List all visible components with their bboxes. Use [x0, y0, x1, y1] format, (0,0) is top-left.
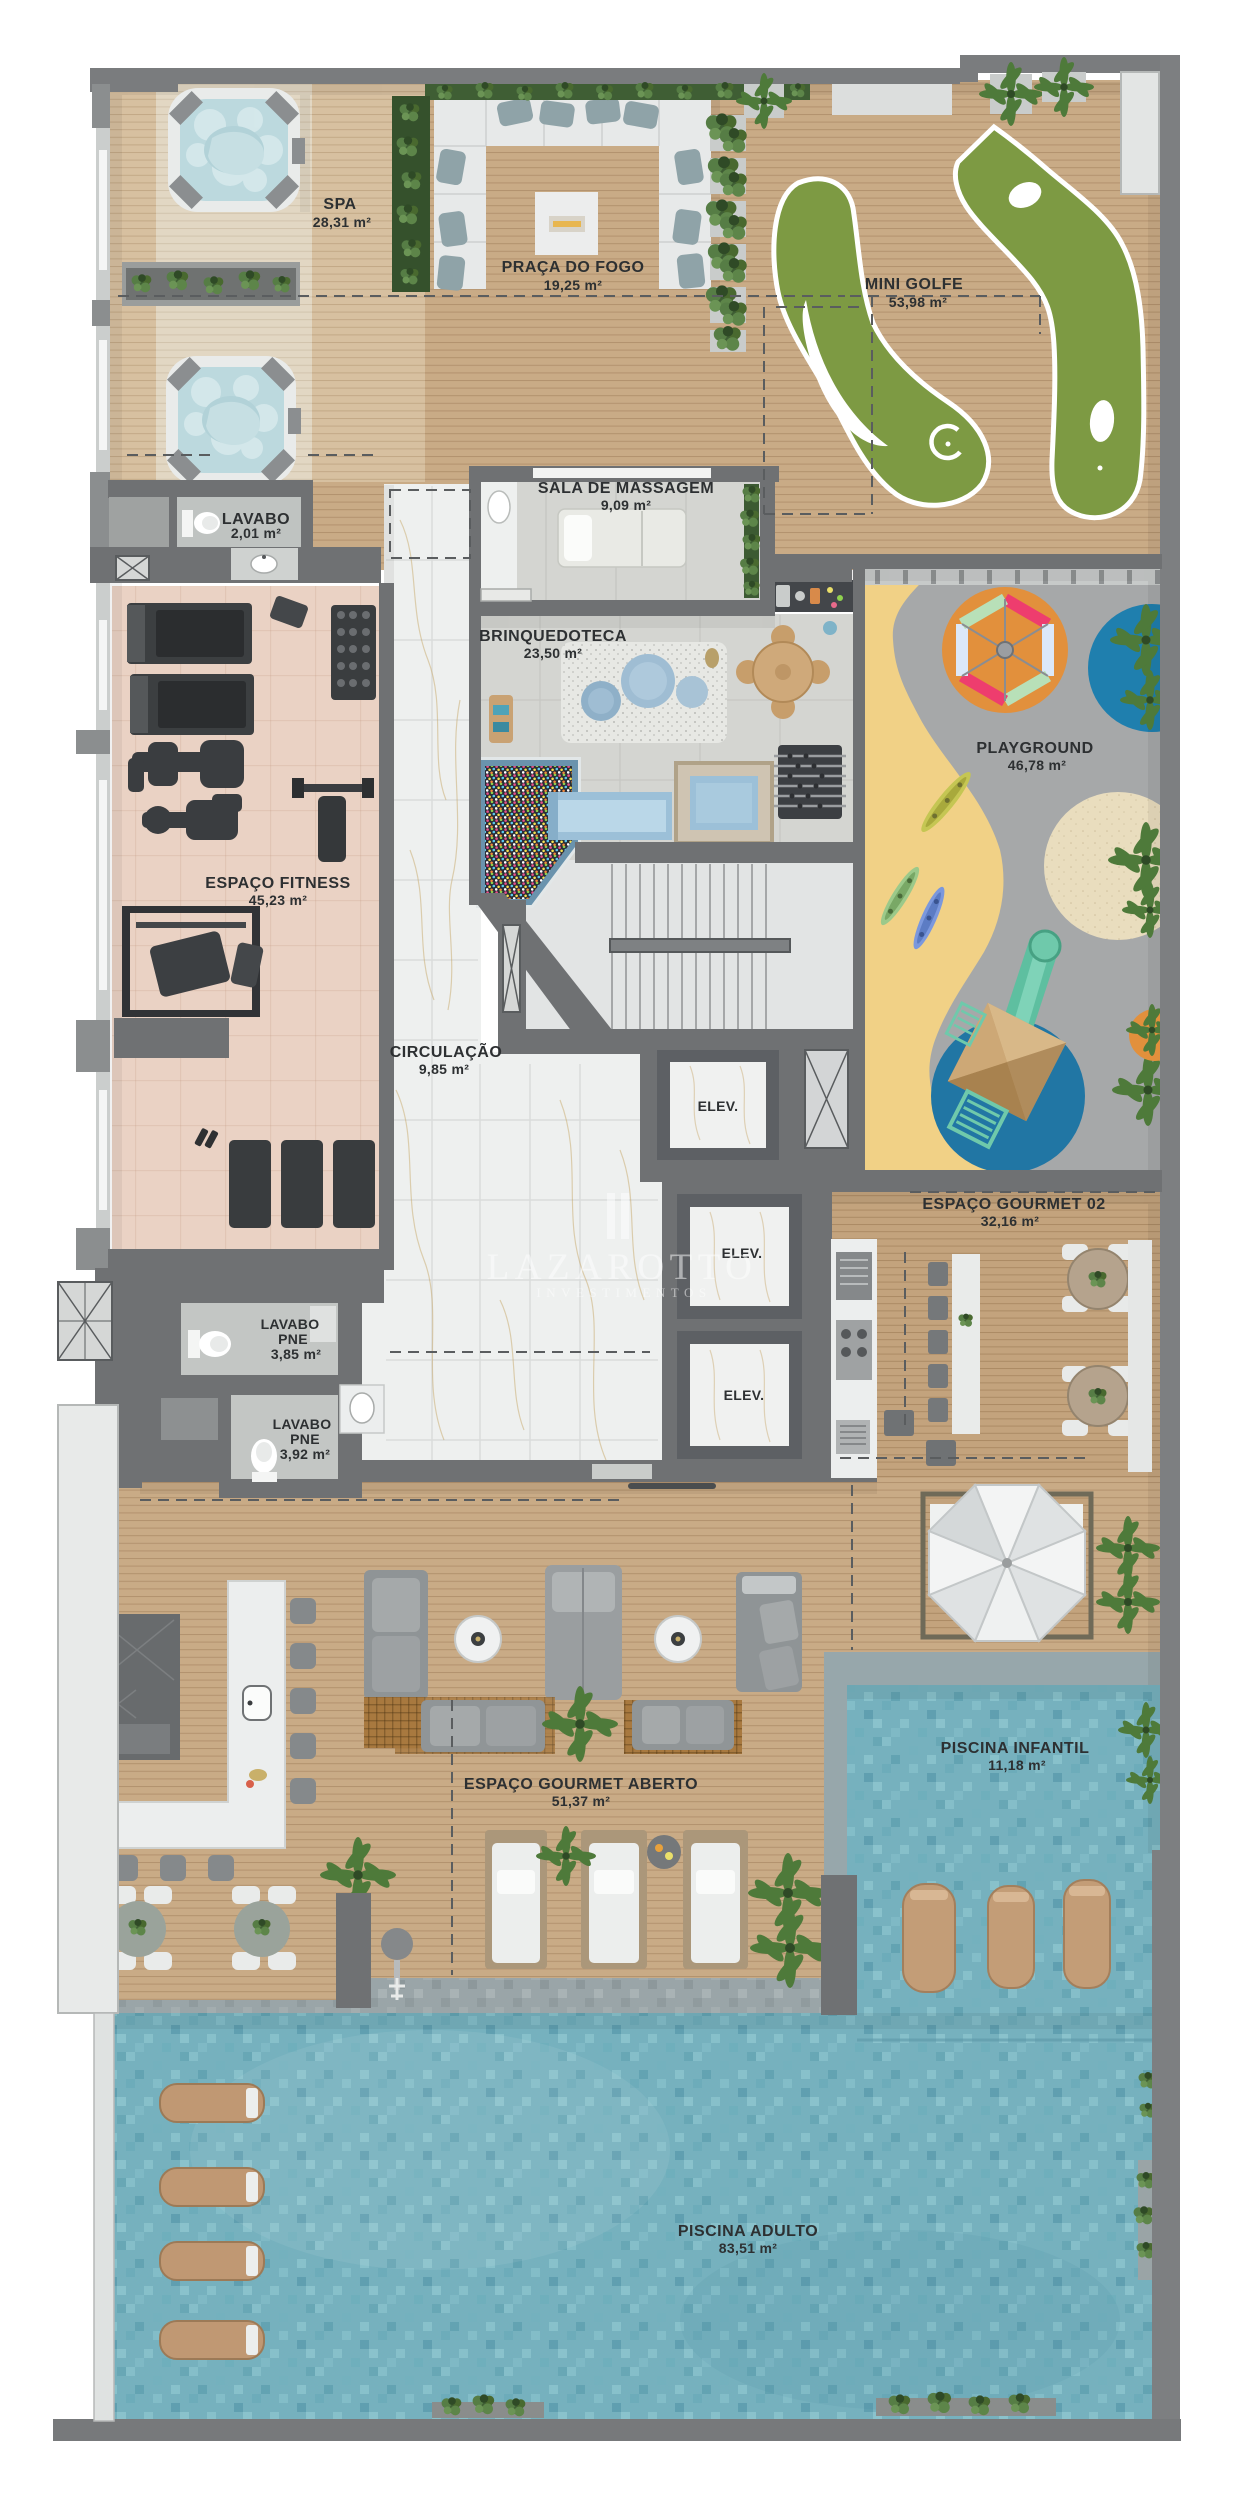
svg-text:2,01 m²: 2,01 m² [231, 525, 281, 541]
svg-text:19,25 m²: 19,25 m² [544, 277, 602, 293]
svg-text:9,85 m²: 9,85 m² [419, 1061, 469, 1077]
svg-text:PISCINA INFANTIL: PISCINA INFANTIL [941, 1740, 1090, 1757]
svg-text:ESPAÇO FITNESS: ESPAÇO FITNESS [205, 875, 350, 892]
svg-text:CIRCULAÇÃO: CIRCULAÇÃO [390, 1041, 503, 1061]
svg-text:BRINQUEDOTECA: BRINQUEDOTECA [479, 628, 627, 645]
svg-text:28,31 m²: 28,31 m² [313, 214, 371, 230]
svg-text:ELEV.: ELEV. [724, 1387, 765, 1403]
svg-text:SALA DE MASSAGEM: SALA DE MASSAGEM [538, 480, 714, 497]
svg-text:ESPAÇO GOURMET ABERTO: ESPAÇO GOURMET ABERTO [464, 1776, 698, 1793]
svg-text:LAZAROTTO: LAZAROTTO [487, 1247, 758, 1288]
svg-text:51,37 m²: 51,37 m² [552, 1793, 610, 1809]
svg-text:32,16 m²: 32,16 m² [981, 1213, 1039, 1229]
svg-text:45,23 m²: 45,23 m² [249, 892, 307, 908]
svg-text:LAVABO: LAVABO [261, 1316, 320, 1332]
svg-text:3,85 m²: 3,85 m² [271, 1346, 321, 1362]
svg-text:ESPAÇO GOURMET 02: ESPAÇO GOURMET 02 [922, 1196, 1105, 1213]
svg-text:46,78 m²: 46,78 m² [1008, 757, 1066, 773]
svg-text:ELEV.: ELEV. [698, 1098, 739, 1114]
svg-text:23,50 m²: 23,50 m² [524, 645, 582, 661]
svg-text:PNE: PNE [290, 1431, 320, 1447]
svg-text:3,92 m²: 3,92 m² [280, 1446, 330, 1462]
svg-text:11,18 m²: 11,18 m² [988, 1757, 1046, 1773]
svg-text:LAVABO: LAVABO [273, 1416, 332, 1432]
svg-text:MINI GOLFE: MINI GOLFE [865, 276, 963, 293]
svg-text:PRAÇA DO FOGO: PRAÇA DO FOGO [502, 259, 645, 276]
svg-text:PLAYGROUND: PLAYGROUND [976, 740, 1093, 757]
svg-text:9,09 m²: 9,09 m² [601, 497, 651, 513]
svg-text:SPA: SPA [323, 196, 356, 213]
svg-text:PNE: PNE [278, 1331, 308, 1347]
svg-text:PISCINA ADULTO: PISCINA ADULTO [678, 2223, 818, 2240]
svg-text:INVESTIMENTOS: INVESTIMENTOS [536, 1285, 711, 1300]
svg-text:83,51 m²: 83,51 m² [719, 2240, 777, 2256]
svg-text:53,98 m²: 53,98 m² [889, 294, 947, 310]
